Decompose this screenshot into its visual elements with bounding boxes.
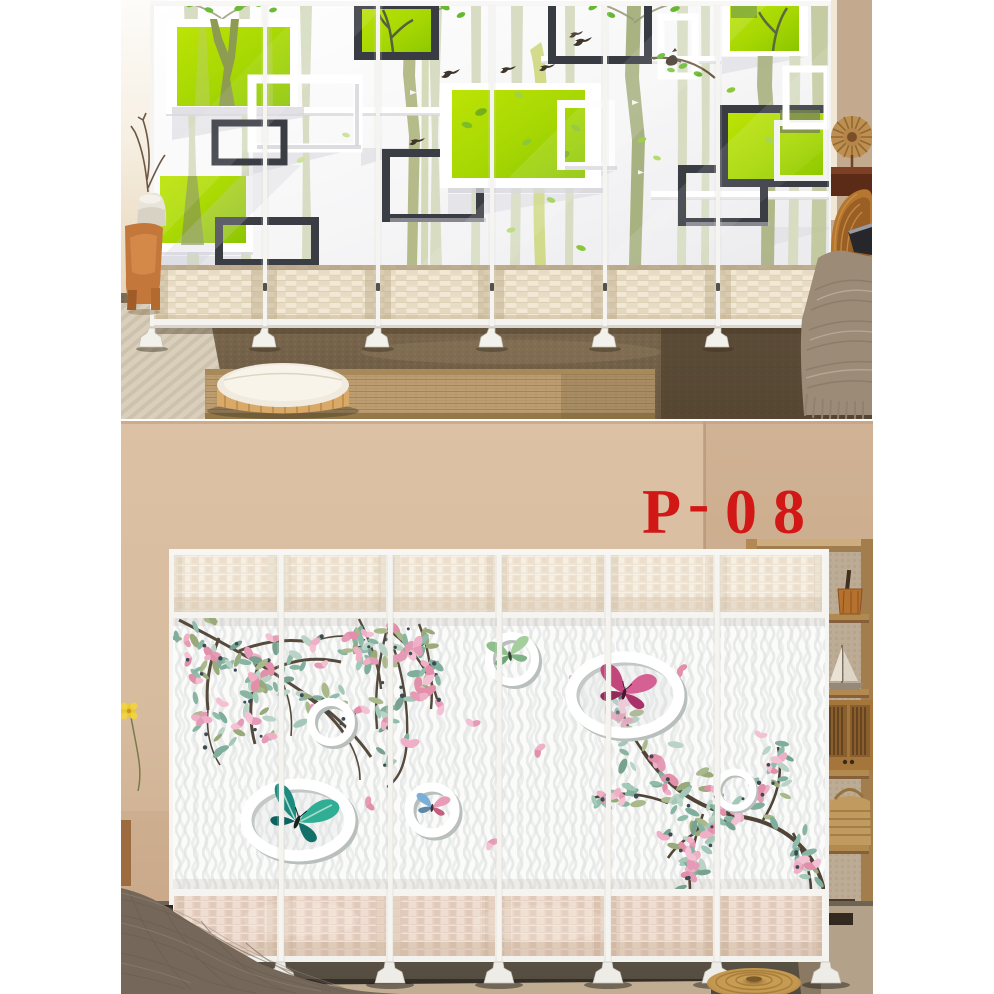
svg-text:08: 08 [725,476,821,547]
svg-text:P: P [642,476,681,547]
svg-text:-: - [688,467,709,538]
